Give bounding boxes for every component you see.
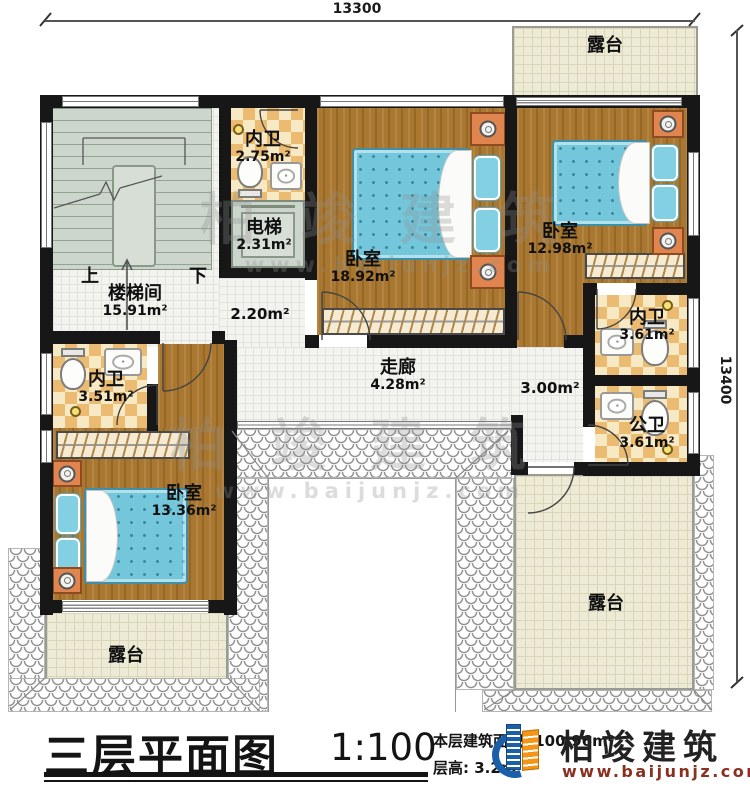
wall — [40, 600, 62, 613]
sink-basin — [277, 169, 295, 184]
room-area: 2.31m² — [236, 238, 291, 254]
blanket — [618, 142, 650, 224]
roof-center-top — [228, 429, 512, 478]
terrace-sliding-door — [516, 97, 682, 106]
title-underline-thin — [44, 780, 428, 782]
room-name: 卧室 — [330, 250, 395, 270]
terrace-sliding-door — [62, 601, 209, 612]
toilet-tank — [61, 348, 85, 357]
roof-center-right — [456, 478, 514, 690]
room-area: 15.91m² — [102, 304, 167, 320]
wall — [574, 462, 583, 475]
lamp — [480, 121, 497, 138]
label-bedroom-right: 卧室12.98m² — [527, 222, 592, 258]
wall — [305, 335, 319, 348]
bedroom-master-wardrobe — [322, 308, 505, 335]
room-area: 3.61m² — [619, 436, 674, 452]
label-stairs-down: 下 — [189, 262, 207, 288]
wall — [305, 95, 317, 280]
label-terrace-bottom-left: 露台 — [108, 646, 144, 666]
nightstand — [470, 255, 506, 289]
bedroom-right-bed — [552, 140, 686, 226]
wall — [511, 415, 523, 467]
label-elevator-lobby: 2.20m² — [230, 306, 289, 323]
toilet-tank — [643, 390, 667, 399]
wall — [367, 335, 510, 348]
room-name: 内卫 — [235, 130, 290, 150]
room-name: 内卫 — [619, 308, 674, 328]
brand-logo-icon — [492, 722, 552, 784]
corridor-railing-window — [237, 421, 512, 429]
roof-right-bottom — [482, 690, 712, 712]
pillow — [652, 185, 678, 221]
lamp — [660, 233, 677, 250]
wall — [583, 283, 595, 427]
bedroom-master-bed — [352, 148, 508, 260]
label-bath-right: 内卫3.61m² — [619, 308, 674, 344]
room-area: 18.92m² — [330, 270, 395, 286]
sink-basin — [112, 355, 134, 370]
window — [320, 96, 504, 107]
sink — [270, 162, 302, 190]
room-name: 楼梯间 — [102, 284, 167, 304]
toilet-tank — [238, 189, 262, 198]
label-bath-public: 公卫3.61m² — [619, 416, 674, 452]
room-area: 13.36m² — [151, 504, 216, 520]
room-name: 卧室 — [151, 484, 216, 504]
dimension-right-line — [736, 30, 738, 682]
window — [62, 96, 199, 107]
pillow — [652, 145, 678, 181]
bedroom-lower-entry-floor — [158, 344, 224, 430]
room-name: 公卫 — [619, 416, 674, 436]
plan-scale: 1:100 — [330, 726, 437, 769]
room-area: 2.75m² — [235, 150, 290, 166]
nightstand — [652, 110, 684, 138]
label-terrace-top: 露台 — [587, 36, 623, 56]
wall — [636, 283, 700, 295]
room-name: 露台 — [587, 36, 623, 56]
stair-void — [112, 165, 156, 267]
wall — [224, 340, 237, 615]
room-area: 3.51m² — [78, 390, 133, 406]
label-bath-left: 内卫3.51m² — [78, 370, 133, 406]
pillow — [56, 494, 80, 534]
roof-right-strip — [694, 455, 714, 690]
nightstand — [652, 227, 684, 255]
window — [41, 353, 52, 415]
window — [41, 122, 52, 248]
window — [41, 430, 52, 463]
dimension-top: 13300 — [302, 1, 412, 17]
dimension-right: 13400 — [713, 345, 733, 415]
lamp — [59, 465, 76, 482]
window — [688, 298, 699, 368]
nightstand — [52, 567, 82, 594]
wall — [208, 600, 237, 613]
lamp — [59, 572, 76, 589]
bedroom-right-wardrobe — [585, 253, 685, 279]
room-name: 走廊 — [370, 358, 425, 378]
label-stairwell: 楼梯间15.91m² — [102, 284, 167, 320]
room-area: 4.28m² — [370, 378, 425, 394]
lamp — [660, 116, 677, 133]
elevator-door — [241, 205, 295, 208]
room-name: 内卫 — [78, 370, 133, 390]
terrace-bottom-right-floor — [514, 474, 694, 690]
wall — [505, 95, 517, 348]
window — [688, 392, 699, 454]
room-name: 电梯 — [236, 218, 291, 238]
title-block: 三层平面图 1:100 本层建筑面积: 100.96m² 层高: 3.2m 柏竣… — [0, 712, 750, 795]
roof-left-bottom — [8, 678, 260, 712]
room-name: 露台 — [108, 646, 144, 666]
room-name: 露台 — [588, 594, 624, 614]
dimension-top-line — [45, 20, 695, 22]
room-name: 卧室 — [527, 222, 592, 242]
label-stairs-up: 上 — [81, 262, 99, 288]
pillow — [474, 208, 500, 252]
floor-plan: 13300 13400 — [0, 0, 750, 795]
window — [688, 152, 699, 236]
lamp — [480, 264, 497, 281]
label-corridor: 走廊4.28m² — [370, 358, 425, 394]
bedroom-lower-wardrobe — [56, 431, 190, 459]
ceiling-lamp — [70, 406, 81, 417]
room-area: 3.00m² — [520, 380, 579, 397]
room-area: 12.98m² — [527, 242, 592, 258]
label-elevator: 电梯2.31m² — [236, 218, 291, 254]
pillow — [474, 156, 500, 200]
label-landing: 3.00m² — [520, 380, 579, 397]
wall — [43, 331, 160, 344]
label-terrace-bottom-right: 露台 — [588, 594, 624, 614]
label-bath-upper: 内卫2.75m² — [235, 130, 290, 166]
label-bedroom-lower: 卧室13.36m² — [151, 484, 216, 520]
wall — [595, 375, 687, 386]
nightstand — [470, 112, 506, 146]
room-area: 3.61m² — [619, 328, 674, 344]
wall — [564, 335, 583, 348]
logo-building-blue — [506, 724, 521, 770]
nightstand — [52, 460, 82, 487]
wall — [219, 95, 231, 275]
logo-building-orange — [522, 729, 539, 771]
wall — [219, 268, 317, 278]
roof-center-flat — [268, 478, 456, 712]
room-area: 2.20m² — [230, 306, 289, 323]
label-bedroom-master: 卧室18.92m² — [330, 250, 395, 286]
wall — [583, 462, 700, 476]
sink-basin — [607, 399, 626, 414]
blanket — [438, 150, 472, 258]
title-underline — [44, 772, 428, 777]
wall — [147, 384, 158, 431]
brand-website: www.baijunjz.com — [562, 762, 750, 781]
